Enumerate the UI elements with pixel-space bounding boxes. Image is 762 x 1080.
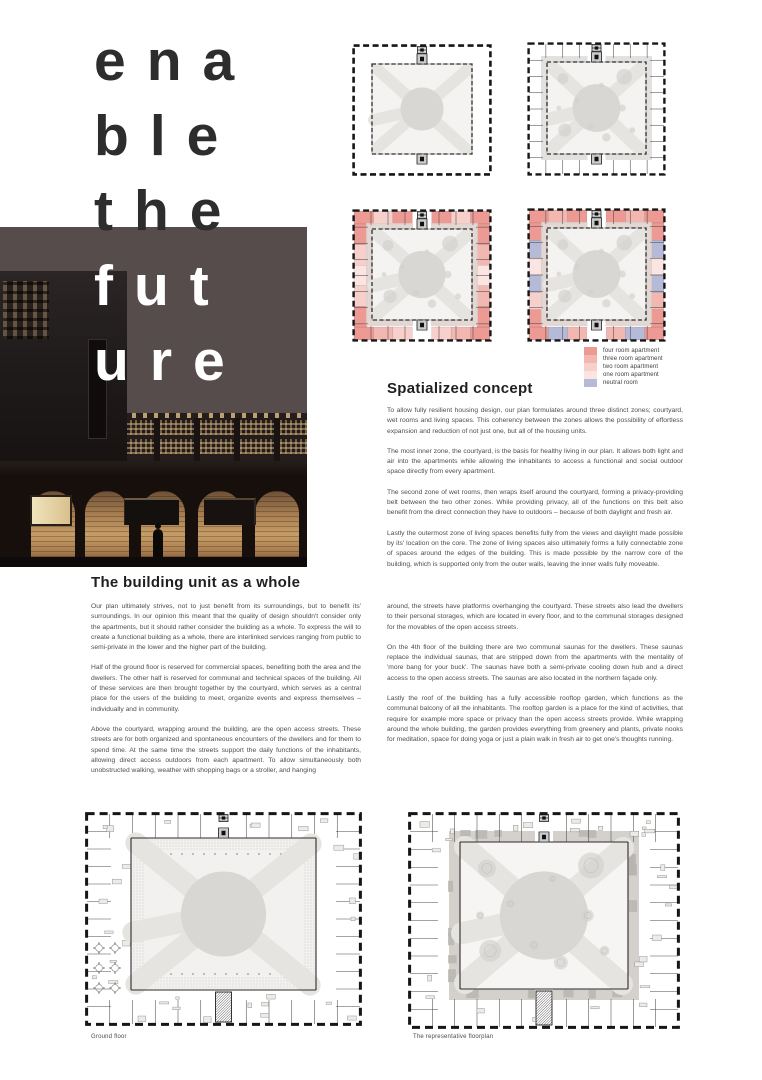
legend-swatch	[584, 363, 597, 371]
perforated-brick-vents	[3, 281, 49, 339]
dark-display-window	[204, 498, 256, 525]
paragraph: Lastly the outermost zone of living spac…	[387, 529, 683, 570]
legend-row: three room apartment	[584, 355, 663, 363]
plan-apartment-types	[352, 209, 492, 342]
legend-label: four room apartment	[603, 348, 659, 354]
paragraph: Half of the ground floor is reserved for…	[91, 663, 361, 714]
ground-floor-caption: Ground floor	[91, 1034, 127, 1040]
legend-swatch	[584, 371, 597, 379]
legend-swatch	[584, 355, 597, 363]
building-unit-column-left: Our plan ultimately strives, not to just…	[91, 602, 361, 786]
paragraph: The most inner zone, the courtyard, is t…	[387, 447, 683, 478]
title-line: ure	[94, 324, 255, 399]
legend-swatch	[584, 347, 597, 355]
arch	[85, 491, 129, 567]
legend-swatch	[584, 379, 597, 387]
concrete-beam	[0, 461, 307, 477]
paragraph: The second zone of wet rooms, then wraps…	[387, 488, 683, 519]
legend-row: two room apartment	[584, 363, 663, 371]
representative-floorplan-caption: The representative floorplan	[413, 1034, 493, 1040]
title-line: fut	[94, 249, 255, 324]
plan-ground-floor	[85, 812, 362, 1026]
legend-label: two room apartment	[603, 364, 658, 370]
title-line: ble	[94, 99, 255, 174]
paragraph: Our plan ultimately strives, not to just…	[91, 602, 361, 653]
paragraph: Lastly the roof of the building has a fu…	[387, 694, 683, 745]
legend-label: one room apartment	[603, 372, 659, 378]
paragraph: around, the streets have platforms overh…	[387, 602, 683, 633]
arch	[255, 491, 299, 567]
legend-row: one room apartment	[584, 371, 663, 379]
plan-apartment-types-neutral	[527, 208, 666, 342]
section-heading-spatialized-concept: Spatialized concept	[387, 380, 533, 397]
building-unit-column-right: around, the streets have platforms overh…	[387, 602, 683, 756]
paragraph: On the 4th floor of the building there a…	[387, 643, 683, 684]
plan-room-layout	[527, 42, 666, 176]
plan-basic-structure	[352, 44, 492, 176]
apartment-legend: four room apartmentthree room apartmentt…	[584, 347, 663, 387]
spatialized-paragraphs: To allow fully resilient housing design,…	[387, 406, 683, 580]
title-line: ena	[94, 24, 255, 99]
lit-window	[30, 495, 72, 526]
poster-page: ena ble the fut ure four room apartmentt…	[0, 0, 762, 1080]
legend-row: four room apartment	[584, 347, 663, 355]
section-heading-building-unit: The building unit as a whole	[91, 574, 300, 591]
person-silhouette	[153, 529, 163, 559]
title-line: the	[94, 174, 255, 249]
plan-representative-floor	[408, 812, 680, 1029]
legend-row: neutral room	[584, 379, 663, 387]
paragraph: To allow fully resilient housing design,…	[387, 406, 683, 437]
legend-label: three room apartment	[603, 356, 663, 362]
poster-title: ena ble the fut ure	[94, 24, 255, 399]
dark-display-window	[124, 498, 179, 525]
paragraph: Above the courtyard, wrapping around the…	[91, 725, 361, 776]
ground-shadow	[0, 557, 307, 567]
legend-label: neutral room	[603, 380, 638, 386]
